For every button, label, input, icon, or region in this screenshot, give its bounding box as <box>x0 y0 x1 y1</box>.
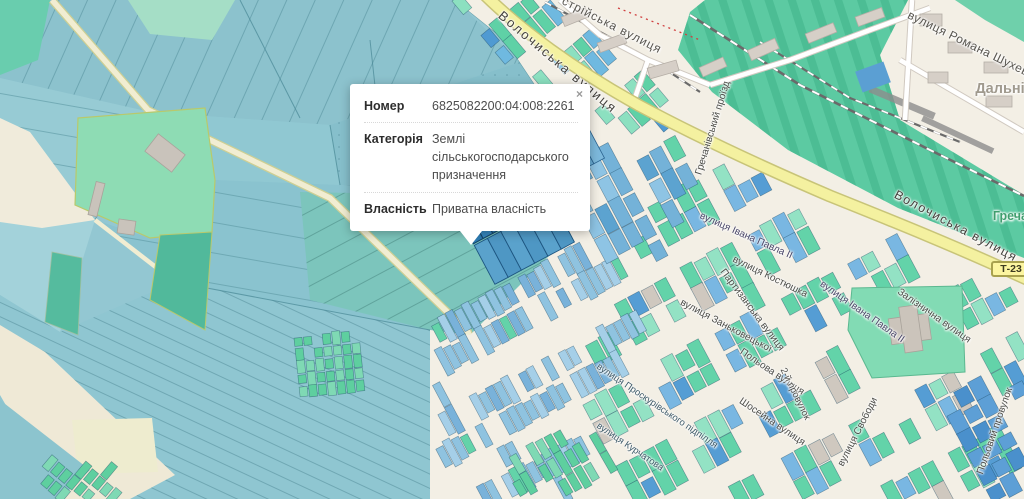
cadastral-map-app: Волочиська вулицяВолочиська вулицястрійс… <box>0 0 1024 499</box>
popup-row-ownership: Власність Приватна власність <box>364 193 578 225</box>
popup-label: Номер <box>364 97 428 115</box>
popup-label: Власність <box>364 200 428 218</box>
popup-label: Категорія <box>364 130 428 184</box>
church-block <box>848 286 965 378</box>
popup-value: Землі сільськогосподарського призначення <box>428 130 578 184</box>
popup-close-button[interactable]: × <box>576 88 583 100</box>
popup-row-category: Категорія Землі сільськогосподарського п… <box>364 123 578 192</box>
popup-row-number: Номер 6825082200:04:008:2261 <box>364 90 578 123</box>
road-shield: Т-23 <box>991 261 1024 277</box>
map-canvas[interactable] <box>0 0 1024 499</box>
parcel-info-popup: × Номер 6825082200:04:008:2261 Категорія… <box>350 84 590 231</box>
popup-value: Приватна власність <box>428 200 578 218</box>
popup-value: 6825082200:04:008:2261 <box>428 97 578 115</box>
